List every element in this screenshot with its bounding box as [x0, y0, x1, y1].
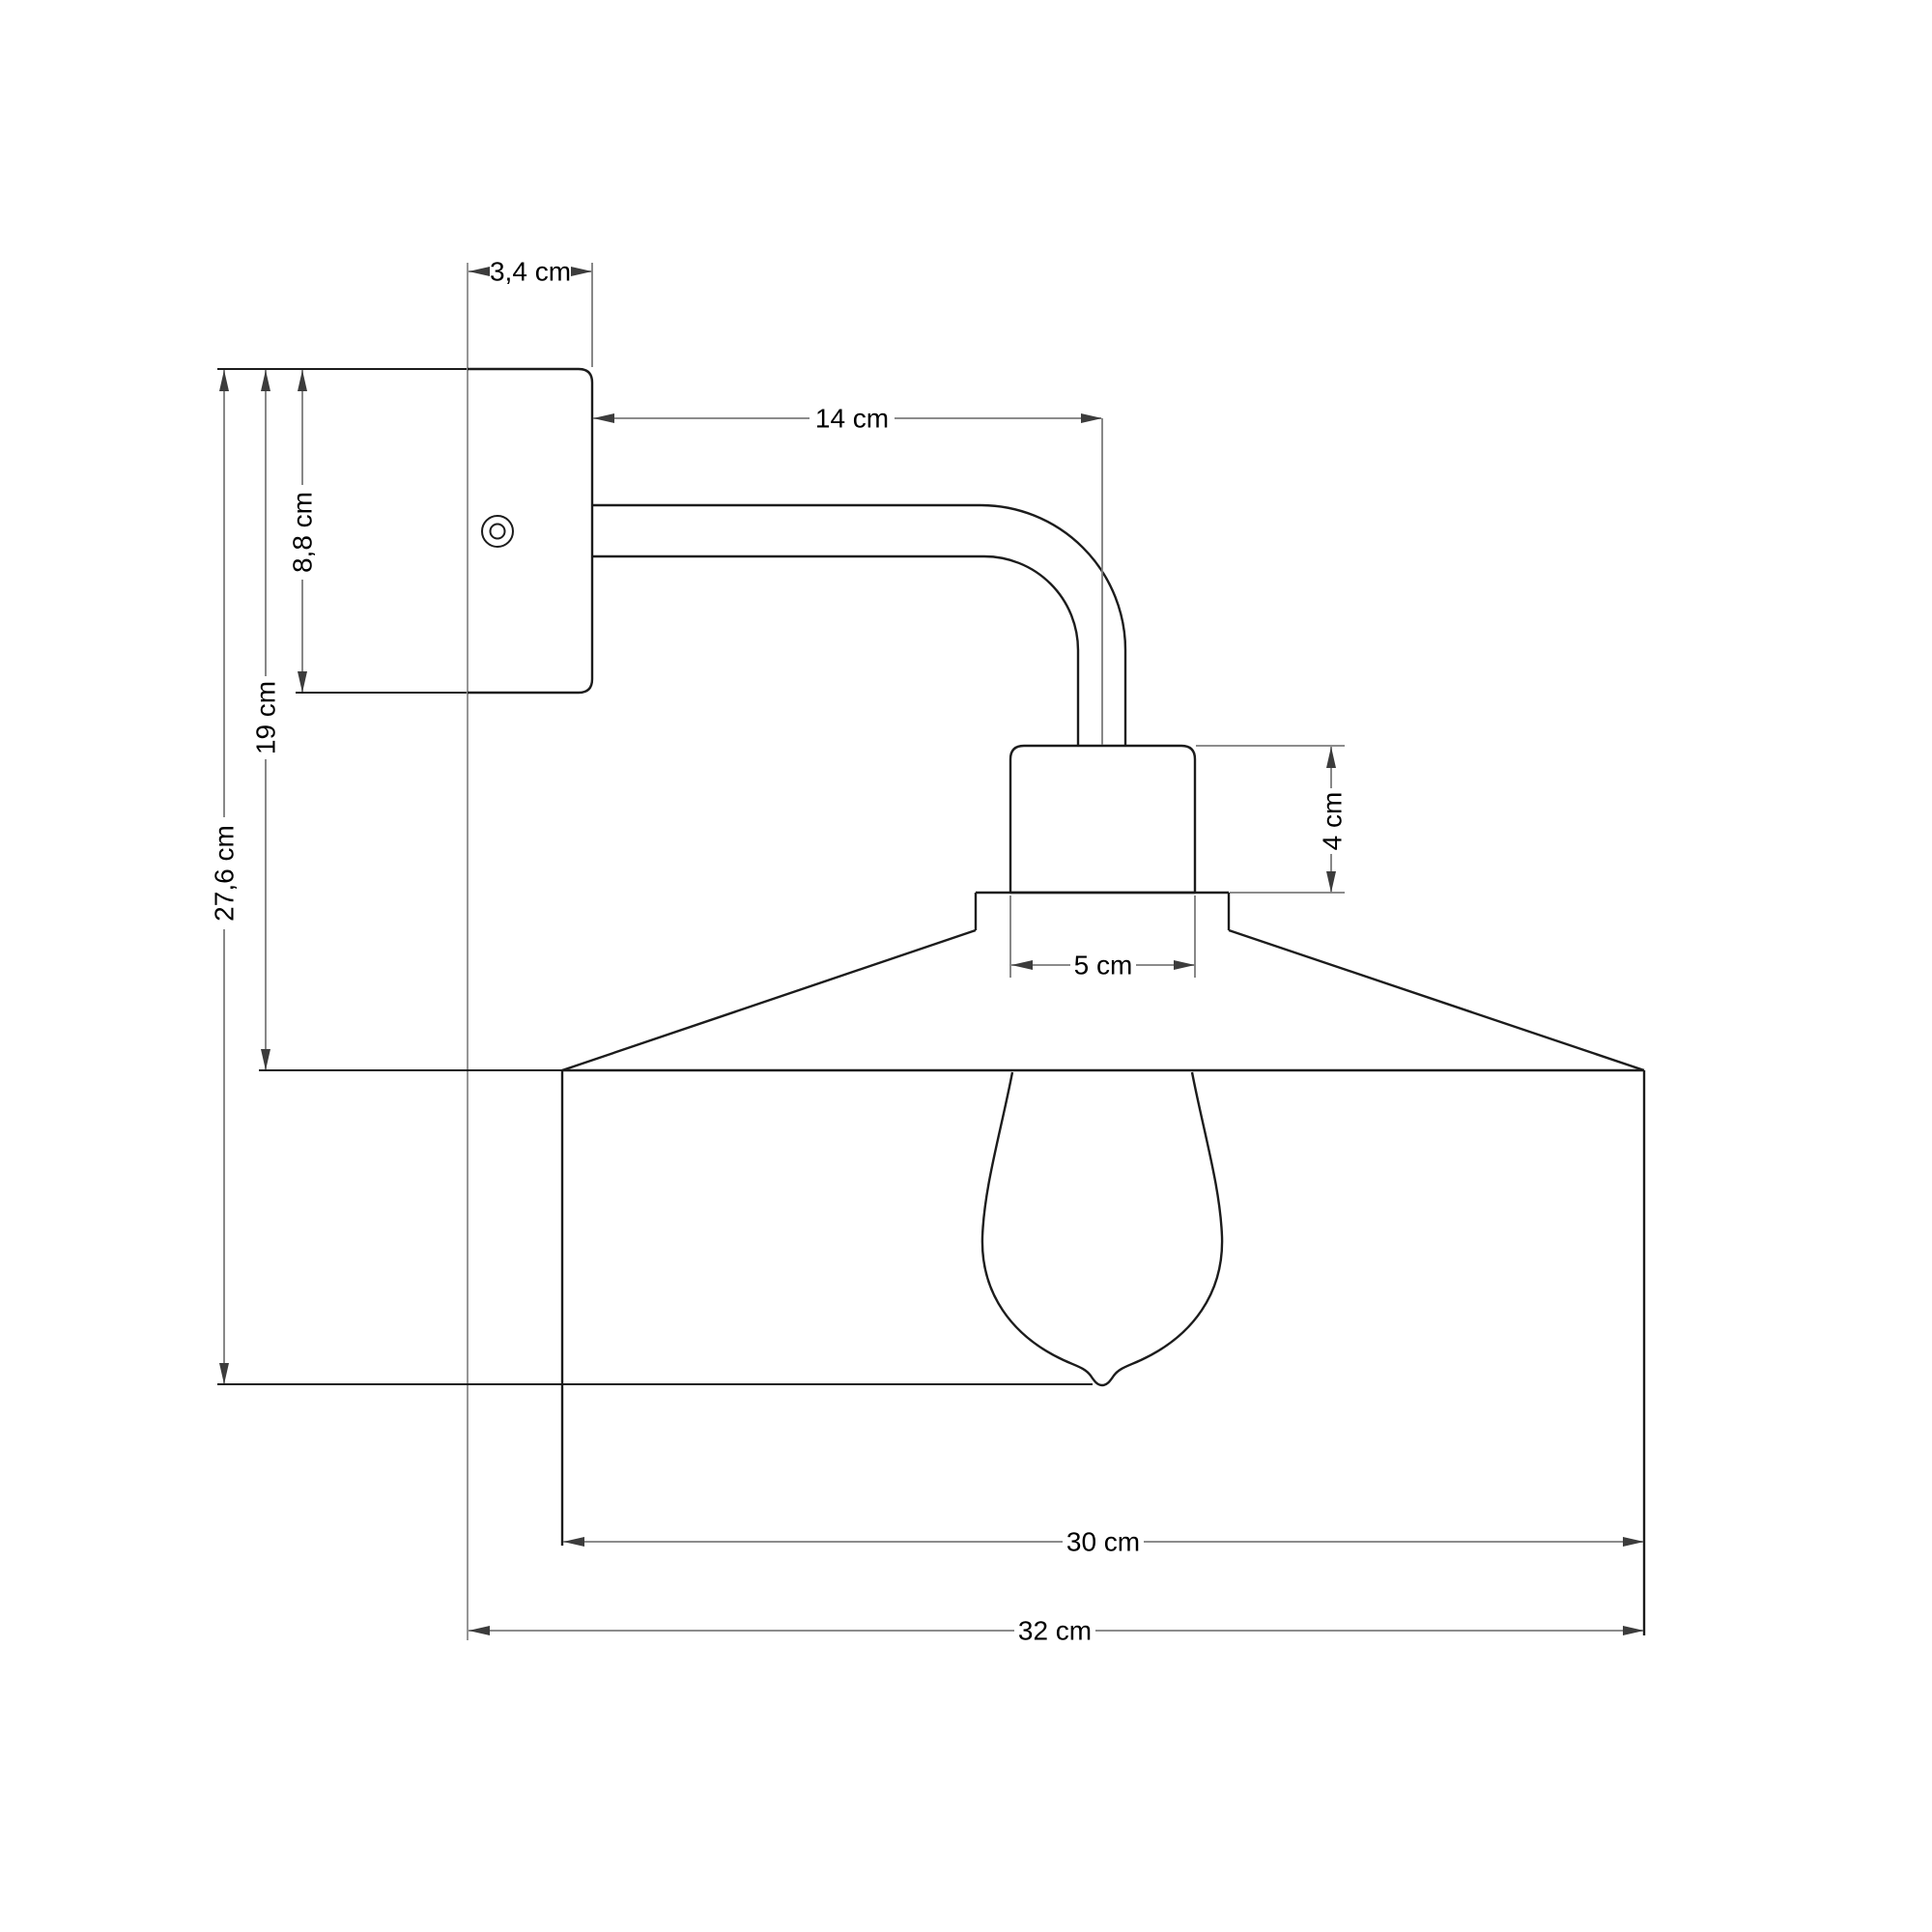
bulb-outline — [982, 1072, 1222, 1385]
dimension-socket-width: 5 cm — [1010, 895, 1195, 980]
dim-label-socket-height: 4 cm — [1318, 792, 1348, 851]
arrowhead-right-icon — [1174, 960, 1195, 970]
arrowhead-left-icon — [1011, 960, 1033, 970]
dim-label-plate-depth: 3,4 cm — [490, 257, 571, 287]
arrowhead-down-icon — [261, 1049, 270, 1070]
arm-tube — [592, 505, 1125, 746]
dimension-arm-length: 14 cm — [593, 404, 1102, 746]
arrowhead-up-icon — [219, 370, 229, 391]
dimension-mount-to-shade: 19 cm — [251, 370, 281, 1070]
screw-hole-inner-icon — [491, 525, 505, 539]
dim-label-mount-to-shade: 19 cm — [251, 681, 281, 754]
dim-label-shade-diameter: 30 cm — [1066, 1527, 1140, 1557]
arrowhead-left-icon — [593, 413, 614, 423]
arrowhead-up-icon — [261, 370, 270, 391]
dim-label-socket-width: 5 cm — [1074, 951, 1133, 980]
socket-outline — [1010, 746, 1195, 893]
lamp-socket — [1010, 746, 1195, 893]
arrowhead-down-icon — [219, 1363, 229, 1384]
arrowhead-down-icon — [298, 671, 307, 693]
dimension-total-depth: 32 cm — [469, 1616, 1644, 1646]
dimension-socket-height: 4 cm — [1196, 746, 1348, 893]
screw-hole-outer-icon — [482, 516, 513, 547]
arrowhead-left-icon — [469, 267, 490, 276]
dimension-plate-height: 8,8 cm — [288, 370, 318, 693]
wall-plate — [217, 369, 592, 693]
dimension-shade-diameter: 30 cm — [563, 1527, 1644, 1557]
arrowhead-right-icon — [571, 267, 592, 276]
shade-cone-left — [562, 930, 976, 1070]
dimension-total-height: 27,6 cm — [210, 370, 240, 1384]
arrowhead-up-icon — [298, 370, 307, 391]
dimension-drawing: 3,4 cm 14 cm 8,8 cm 19 cm 27,6 cm — [0, 0, 1932, 1932]
drawing-svg: 3,4 cm 14 cm 8,8 cm 19 cm 27,6 cm — [0, 0, 1932, 1932]
dim-label-arm-length: 14 cm — [815, 404, 889, 434]
arrowhead-right-icon — [1623, 1626, 1644, 1635]
arrowhead-down-icon — [1326, 871, 1336, 893]
shade-cone-right — [1229, 930, 1644, 1070]
arrowhead-left-icon — [469, 1626, 490, 1635]
arrowhead-right-icon — [1081, 413, 1102, 423]
dimension-plate-depth: 3,4 cm — [469, 257, 592, 368]
dim-label-plate-height: 8,8 cm — [288, 492, 318, 573]
arm-inner-line — [592, 556, 1078, 746]
bulb — [217, 1072, 1222, 1385]
arrowhead-up-icon — [1326, 747, 1336, 768]
arrowhead-left-icon — [563, 1537, 584, 1547]
wall-plate-outline — [468, 369, 592, 693]
arrowhead-right-icon — [1623, 1537, 1644, 1547]
dim-label-total-height: 27,6 cm — [210, 825, 240, 922]
arm-outer-line — [592, 505, 1125, 746]
dim-label-total-depth: 32 cm — [1018, 1616, 1092, 1646]
